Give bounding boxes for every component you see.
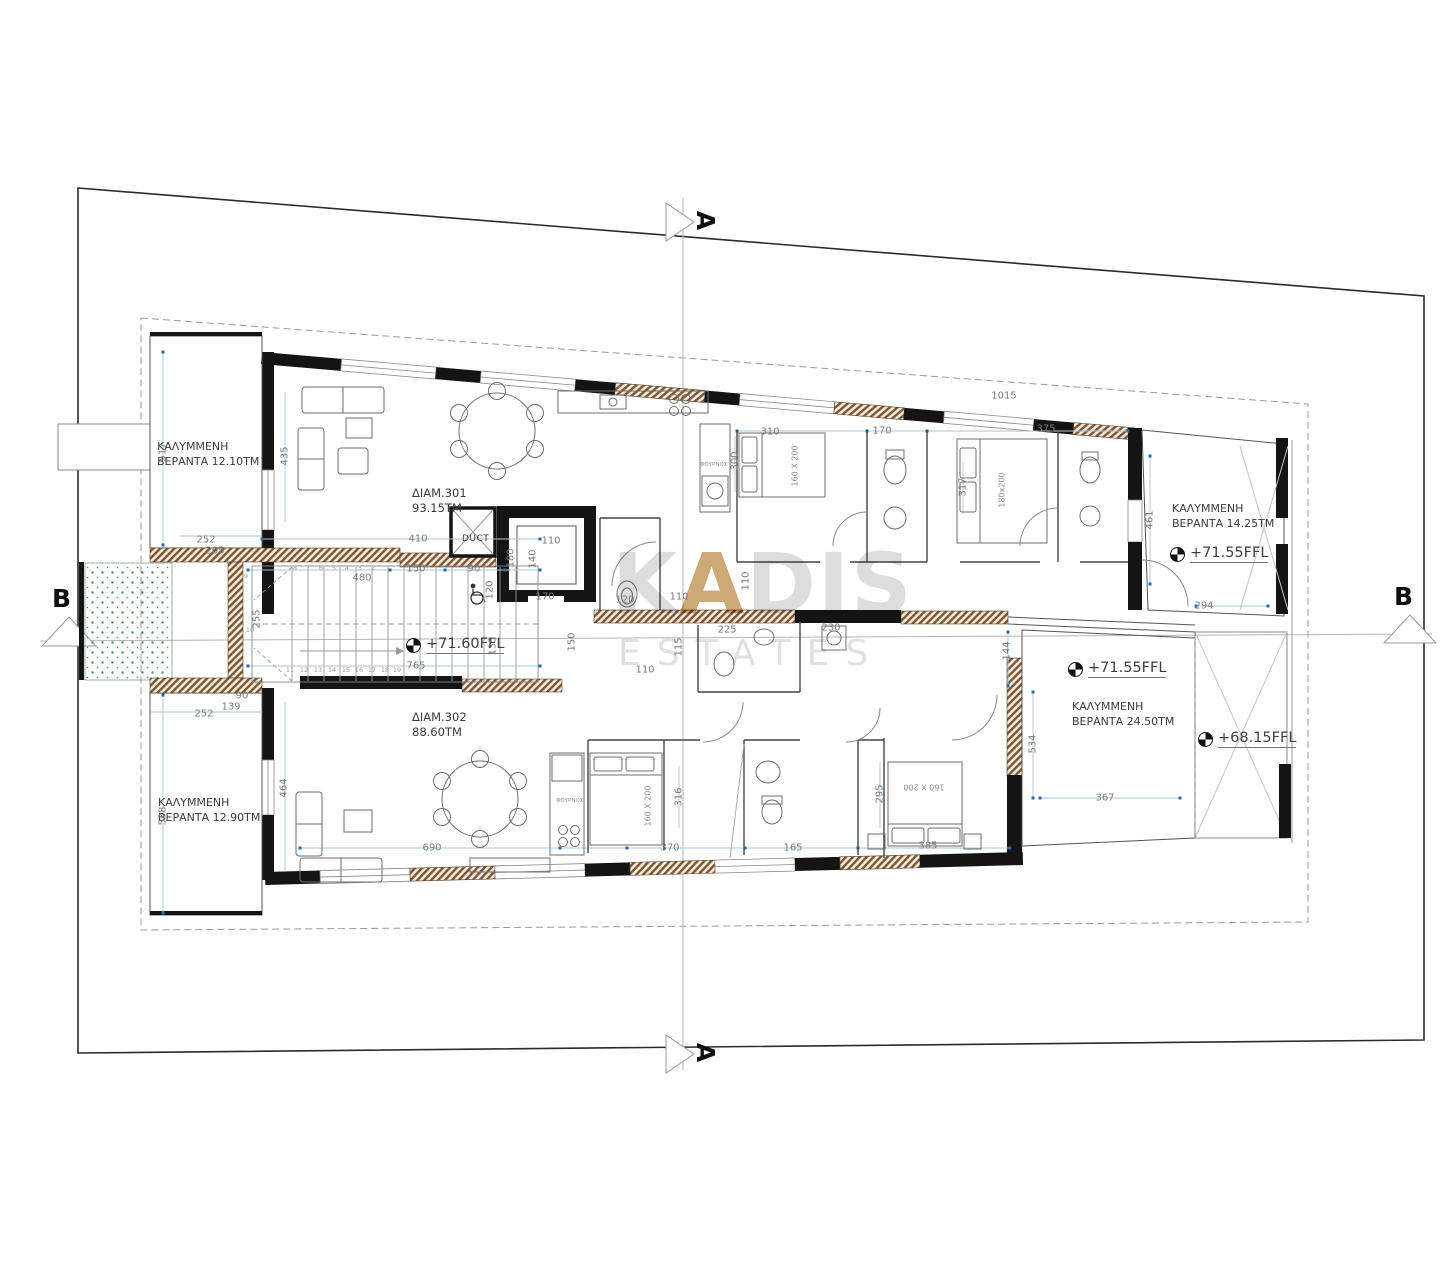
dimension-label: 230 (821, 623, 840, 634)
kitchen-301 (558, 391, 730, 512)
bathroom-302-1 (756, 761, 782, 824)
dimension-label: 517 (158, 442, 169, 461)
dimension-label: 19 (393, 666, 401, 674)
bathroom-301-2 (1080, 452, 1100, 526)
dimension-label: 110 (635, 665, 654, 676)
dimension-label: 3 (358, 564, 362, 572)
dimension-label: 534 (1028, 734, 1039, 753)
dimension-label: 480 (352, 573, 371, 584)
partitions-301 (600, 430, 1128, 610)
dimension-label: 1015 (991, 391, 1016, 402)
dimension-label: 538 (158, 806, 169, 825)
dimension-label: 367 (1095, 793, 1114, 804)
dimension-label: 252 (196, 535, 215, 546)
dimension-label: 16 (355, 666, 363, 674)
dimension-label: 150 (567, 632, 578, 651)
furniture-layer (296, 383, 1188, 883)
dimension-label: 120 (615, 595, 634, 606)
section-marker-a-bottom: A (691, 1043, 720, 1062)
level-71-55-b: +71.55FFL (1068, 660, 1166, 678)
section-marker-a-top: A (691, 211, 720, 230)
dimension-label: 765 (406, 661, 425, 672)
bed-302-2 (868, 762, 981, 849)
bed-size-label: 160 X 200 (791, 445, 800, 486)
dimension-label: 385 (918, 841, 937, 852)
dimension-label: 115 (674, 637, 685, 656)
dimension-label: 120 (485, 580, 496, 599)
apartment-302-label: ΔΙΑΜ.302 88.60ΤΜ (412, 710, 467, 740)
elevator-core (451, 506, 596, 604)
dimension-label: 135 (488, 636, 499, 655)
bed-301-1 (739, 433, 825, 497)
dining-table-301 (451, 383, 544, 480)
duct-label: DUCT (462, 534, 489, 544)
dimension-label: 295 (875, 784, 886, 803)
section-marker-b-right: B (1394, 582, 1413, 611)
bed-size-label: 180x200 (998, 472, 1007, 507)
dimension-label: 170 (535, 592, 554, 603)
dimension-label: 7 (306, 564, 310, 572)
planter-area (79, 562, 172, 680)
oven-label-301: ΦΟΥΡΝΟΣ (700, 462, 727, 468)
dimension-label: 300 (730, 451, 741, 470)
dimension-label: 150 (406, 564, 425, 575)
bed-size-label: 160 X 200 (644, 785, 653, 826)
dimension-label: 410 (408, 534, 427, 545)
dimension-label: 10 (246, 626, 254, 634)
bed-size-label: 160 X 200 (903, 783, 944, 792)
dimension-label: 140 (528, 549, 539, 568)
dimension-label: 317 (958, 477, 969, 496)
dimension-label: 225 (717, 625, 736, 636)
dimension-label: 8 (293, 564, 297, 572)
dimension-label: 17 (368, 666, 376, 674)
dimension-label: 252 (194, 709, 213, 720)
dimension-label: 165 (783, 843, 802, 854)
bathroom-301-1 (884, 450, 906, 529)
dimension-label: 461 (1145, 510, 1156, 529)
dimension-label: 12 (300, 666, 308, 674)
floor-plan-canvas: KADIS ESTATES ΚΑΛΥΜΜΕΝΗ ΒΕΡΑΝΤΑ 12.10ΤΜ … (0, 0, 1440, 1267)
dining-table-302 (434, 751, 527, 848)
level-71-55-a: +71.55FFL (1170, 545, 1268, 563)
dimension-label: 294 (1194, 601, 1213, 612)
level-marker-icon (1068, 662, 1083, 677)
partitions-302 (588, 622, 884, 858)
dimension-label: 180 (506, 548, 517, 567)
veranda-label-top-right: ΚΑΛΥΜΜΕΝΗ ΒΕΡΑΝΤΑ 14.25ΤΜ (1172, 502, 1274, 532)
dimension-label: 110 (669, 592, 688, 603)
dimension-label: 110 (541, 536, 560, 547)
dimension-label: 170 (872, 426, 891, 437)
dimension-label: 6 (319, 564, 323, 572)
dimension-label: 11 (286, 666, 294, 674)
dimension-label: 144 (1002, 641, 1013, 660)
dimension-label: 464 (279, 778, 290, 797)
wheelchair-icon (471, 584, 485, 604)
dimension-label: 370 (660, 843, 679, 854)
kitchen-302 (470, 753, 584, 872)
dimension-label: 14 (328, 666, 336, 674)
dimension-label: 9 (244, 572, 248, 580)
dimension-label: 18 (381, 666, 389, 674)
walls-layer (150, 332, 1291, 915)
level-marker-icon (1170, 547, 1185, 562)
dimension-label: 375 (1036, 424, 1055, 435)
level-marker-icon (1198, 732, 1213, 747)
dimension-label: 205 (205, 546, 224, 557)
dimension-label: 90 (468, 564, 481, 575)
dimension-label: 139 (221, 702, 240, 713)
dimension-label: 690 (422, 843, 441, 854)
dimension-label: 310 (760, 427, 779, 438)
section-marker-b-left: B (52, 584, 71, 613)
dimension-label: 316 (674, 787, 685, 806)
apartment-301-label: ΔΙΑΜ.301 93.15ΤΜ (412, 486, 467, 516)
dimension-label: 2 (371, 564, 375, 572)
dimension-label: 5 (332, 564, 336, 572)
dimension-label: 435 (280, 446, 291, 465)
oven-label-302: ΦΟΥΡΝΟΣ (556, 798, 583, 804)
veranda-label-mid-right: ΚΑΛΥΜΜΕΝΗ ΒΕΡΑΝΤΑ 24.50ΤΜ (1072, 700, 1174, 730)
dimension-label: 13 (314, 666, 322, 674)
dimension-label: 90 (236, 691, 249, 702)
dimension-label: 4 (345, 564, 349, 572)
dimension-label: 15 (342, 666, 350, 674)
veranda-label-top-left: ΚΑΛΥΜΜΕΝΗ ΒΕΡΑΝΤΑ 12.10ΤΜ (157, 440, 259, 470)
level-68-15: +68.15FFL (1198, 730, 1296, 748)
dimension-label: 110 (741, 571, 752, 590)
level-marker-icon (406, 638, 421, 653)
veranda-label-bottom-left: ΚΑΛΥΜΜΕΝΗ ΒΕΡΑΝΤΑ 12.90ΤΜ (158, 796, 260, 826)
